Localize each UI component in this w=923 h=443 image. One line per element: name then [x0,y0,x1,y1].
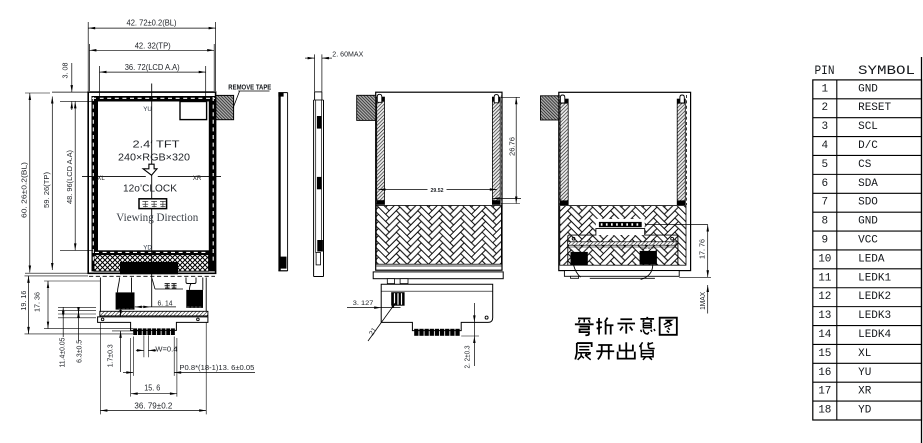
svg-text:REMOVE TAPE: REMOVE TAPE [228,82,271,91]
svg-text:42. 32(TP): 42. 32(TP) [135,41,171,50]
svg-text:P0.8*(18-1)13. 6±0.05: P0.8*(18-1)13. 6±0.05 [179,363,254,372]
svg-text:D/C: D/C [858,140,878,152]
svg-text:15: 15 [818,348,831,360]
svg-text:LEDK4: LEDK4 [858,329,891,341]
svg-text:14: 14 [818,329,832,341]
svg-text:240×RGB×320: 240×RGB×320 [118,152,190,163]
svg-text:CS: CS [858,159,872,171]
svg-text:13: 13 [818,310,831,322]
svg-text:XR: XR [193,175,202,182]
svg-text:LEDK2: LEDK2 [858,291,891,303]
svg-text:12: 12 [818,291,831,303]
svg-text:LEDK1: LEDK1 [858,272,891,284]
svg-text:60. 26±0.2(BL): 60. 26±0.2(BL) [20,162,29,218]
svg-text:17. 36: 17. 36 [33,292,42,312]
svg-text:17. 76: 17. 76 [699,239,706,259]
svg-text:SYMBOL: SYMBOL [858,63,915,78]
svg-text:29.52: 29.52 [431,188,444,194]
svg-text:8: 8 [821,216,828,228]
svg-text:VCC: VCC [858,235,878,247]
svg-text:PIN: PIN [815,63,835,78]
svg-text:SCL: SCL [858,121,878,133]
svg-text:6.3±0.5: 6.3±0.5 [76,340,83,363]
svg-text:YD: YD [143,244,152,251]
svg-text:Viewing Direction: Viewing Direction [116,212,198,224]
svg-text:9: 9 [821,235,828,247]
svg-text:19. 16: 19. 16 [19,291,28,311]
svg-text:GND: GND [858,216,878,228]
svg-text:2. 60MAX: 2. 60MAX [332,50,363,59]
svg-text:XL: XL [858,348,871,360]
svg-text:17: 17 [818,386,831,398]
svg-text:36. 79±0.2: 36. 79±0.2 [134,401,172,410]
svg-text:12o’CLOCK: 12o’CLOCK [123,184,177,195]
svg-text:3: 3 [821,121,828,133]
svg-text:2: 2 [821,102,828,114]
svg-text:4: 4 [821,140,828,152]
svg-text:2. 2±0.3: 2. 2±0.3 [464,345,471,368]
svg-text:16: 16 [818,367,831,379]
svg-text:59. 26(TP): 59. 26(TP) [42,172,51,208]
svg-text:LEDK3: LEDK3 [858,310,891,322]
svg-text:YU: YU [858,367,871,379]
svg-text:11: 11 [818,272,832,284]
svg-text:SDA: SDA [858,178,878,190]
svg-text:48. 96(LCD A.A): 48. 96(LCD A.A) [65,150,74,204]
svg-text:GND: GND [858,83,878,95]
svg-text:RESET: RESET [858,102,891,114]
svg-text:XL: XL [97,175,105,182]
svg-text:LEDA: LEDA [858,253,885,265]
svg-text:YU: YU [143,106,152,113]
svg-text:5: 5 [821,159,828,171]
svg-text:18: 18 [818,405,831,417]
svg-text:42. 72±0.2(BL): 42. 72±0.2(BL) [127,19,177,28]
svg-text:10: 10 [818,253,831,265]
svg-text:1MAX: 1MAX [700,292,707,310]
svg-text:SDO: SDO [858,197,878,209]
svg-text:6: 6 [821,178,828,190]
svg-text:1.7±0.3: 1.7±0.3 [107,344,114,367]
svg-text:XR: XR [858,386,872,398]
svg-text:YD: YD [858,405,872,417]
svg-text:3. 127: 3. 127 [353,300,374,307]
svg-text:1: 1 [821,83,828,95]
svg-text:26.76: 26.76 [509,137,516,156]
svg-text:6. 14: 6. 14 [158,298,173,307]
svg-text:36. 72(LCD A.A): 36. 72(LCD A.A) [125,63,180,72]
svg-text:3. 08: 3. 08 [61,63,70,79]
svg-text:15. 6: 15. 6 [144,384,160,393]
svg-text:2.4′ TFT: 2.4′ TFT [133,139,180,150]
svg-text:7: 7 [821,197,828,209]
svg-text:11.4±0.05: 11.4±0.05 [60,337,67,367]
